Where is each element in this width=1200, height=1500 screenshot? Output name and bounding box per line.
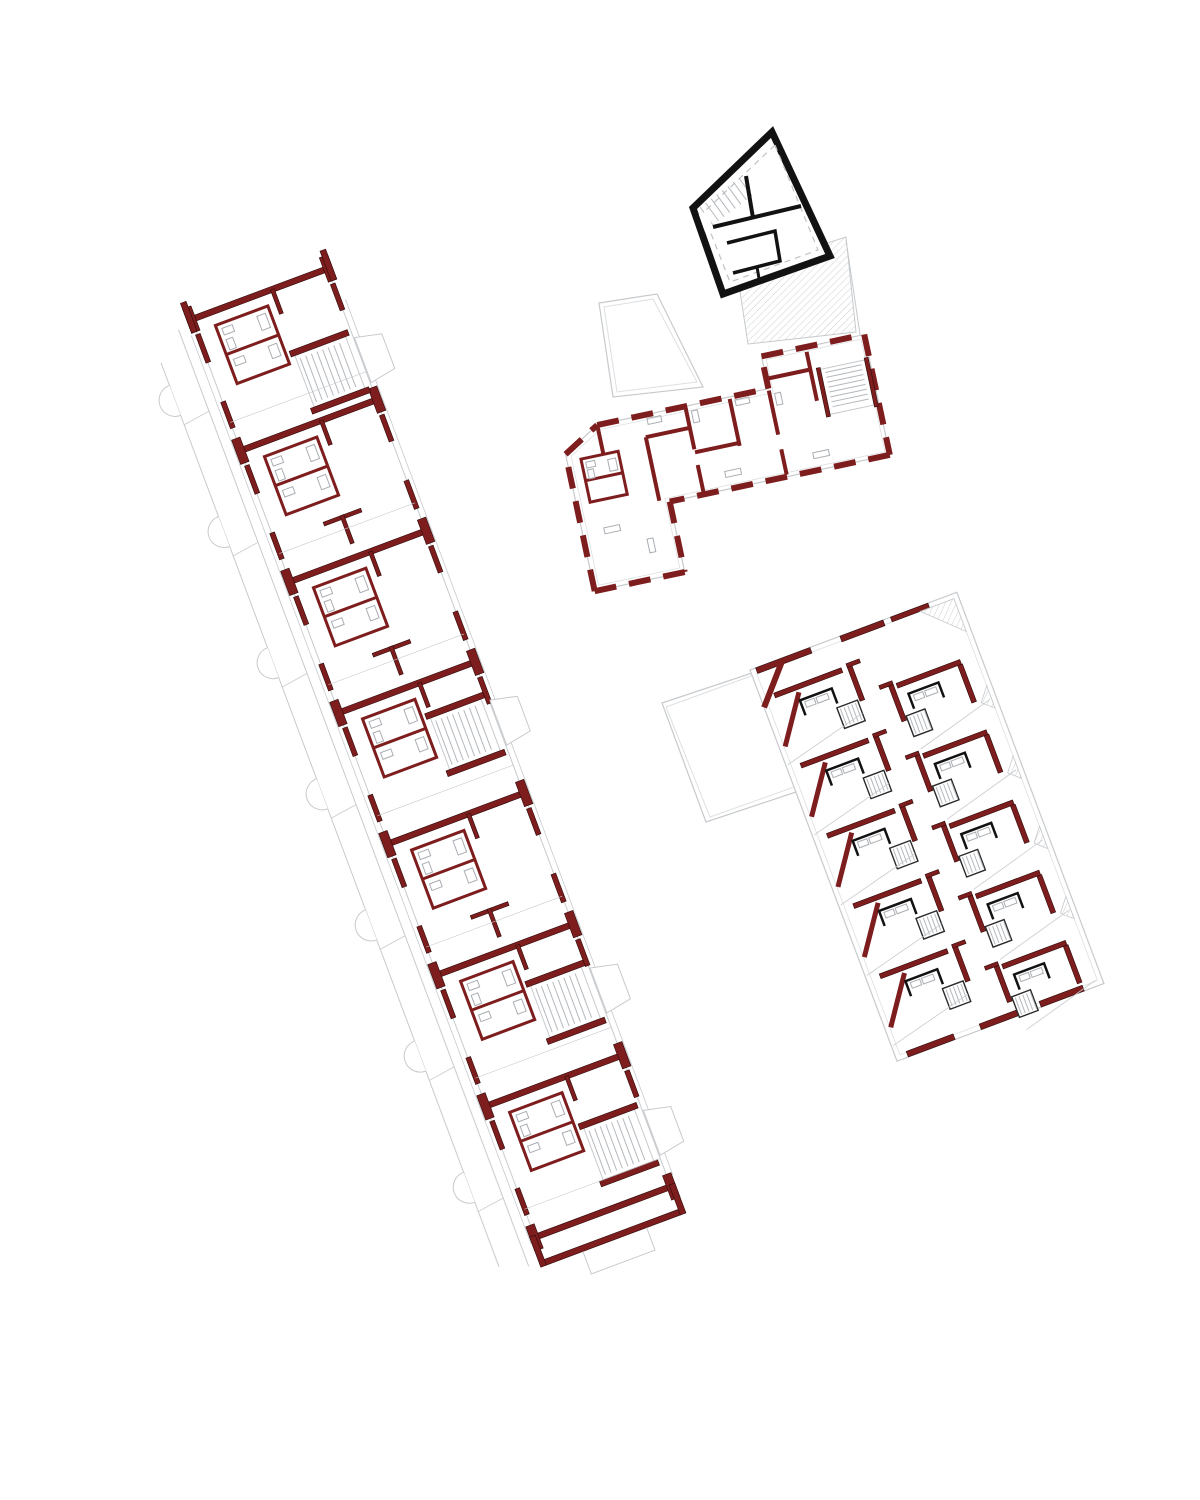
gallery-tick [428,1067,456,1081]
interior-stub-wall [270,289,283,315]
balcony-bump [154,385,180,421]
courtyard-north-outline [599,294,703,397]
gallery-tick [477,1198,505,1212]
east-window-jamb [428,545,442,573]
gallery-tick [379,936,407,950]
entry-porch-outline [590,959,632,1013]
east-window-jamb [526,807,540,835]
gallery-tick [232,542,260,556]
gallery-tick [281,673,309,687]
gallery-tick [330,805,358,819]
party-wall [534,1184,672,1240]
entry-porch-outline [643,1101,685,1155]
balcony-bump [400,1041,426,1077]
building-slab-west [129,241,716,1309]
pavilion-entrance-gap [703,213,709,230]
west-window-jamb [368,794,382,822]
south-end-wall [543,1209,681,1265]
interior-stub-wall [516,944,529,970]
interior-t-wall [340,515,354,545]
interior-stub-wall [319,420,332,446]
west-window-jamb [221,401,235,429]
east-window-jamb [379,414,393,442]
west-window-jamb [466,1056,480,1084]
west-window-jamb [294,596,309,626]
gallery-tick [183,411,211,425]
interior-stub-wall [467,813,480,839]
east-window-jamb [453,611,468,641]
west-window-jamb [270,532,284,560]
balcony-bump [203,517,229,553]
west-window-jamb [319,663,333,691]
site-plan-page: Apartment buildings floor plan - site dr… [0,0,1200,1500]
west-window-jamb [441,989,456,1019]
interior-stub-wall [418,682,431,708]
west-window-jamb [515,1188,529,1216]
west-facade-outer-line [191,336,531,1245]
entry-porch-outline [490,691,532,745]
interior-stub-wall [565,1075,578,1101]
balcony-bump [253,648,279,684]
building-l-block-east [554,335,905,592]
west-window-jamb [195,333,210,363]
balcony-bump [449,1172,475,1208]
balcony-bump [302,779,328,815]
east-window-jamb [551,873,566,903]
east-window-jamb [625,1070,639,1098]
site-plan-canvas [0,0,1200,1500]
balcony-bump [351,910,377,946]
building-terrace-block-southeast [750,592,1110,1076]
east-window-jamb [404,480,419,510]
west-window-jamb [417,925,431,953]
terrace-block-boundary [750,592,1104,1061]
interior-stub-wall [368,551,381,577]
entry-porch-outline [354,328,396,382]
interior-t-wall [487,908,501,938]
east-window-jamb [330,283,344,311]
west-window-jamb [490,1120,505,1150]
gallery-inner-line [179,330,529,1267]
west-window-jamb [392,858,407,888]
west-window-jamb [343,727,358,757]
west-window-jamb [245,464,260,494]
interior-t-wall [389,646,403,676]
